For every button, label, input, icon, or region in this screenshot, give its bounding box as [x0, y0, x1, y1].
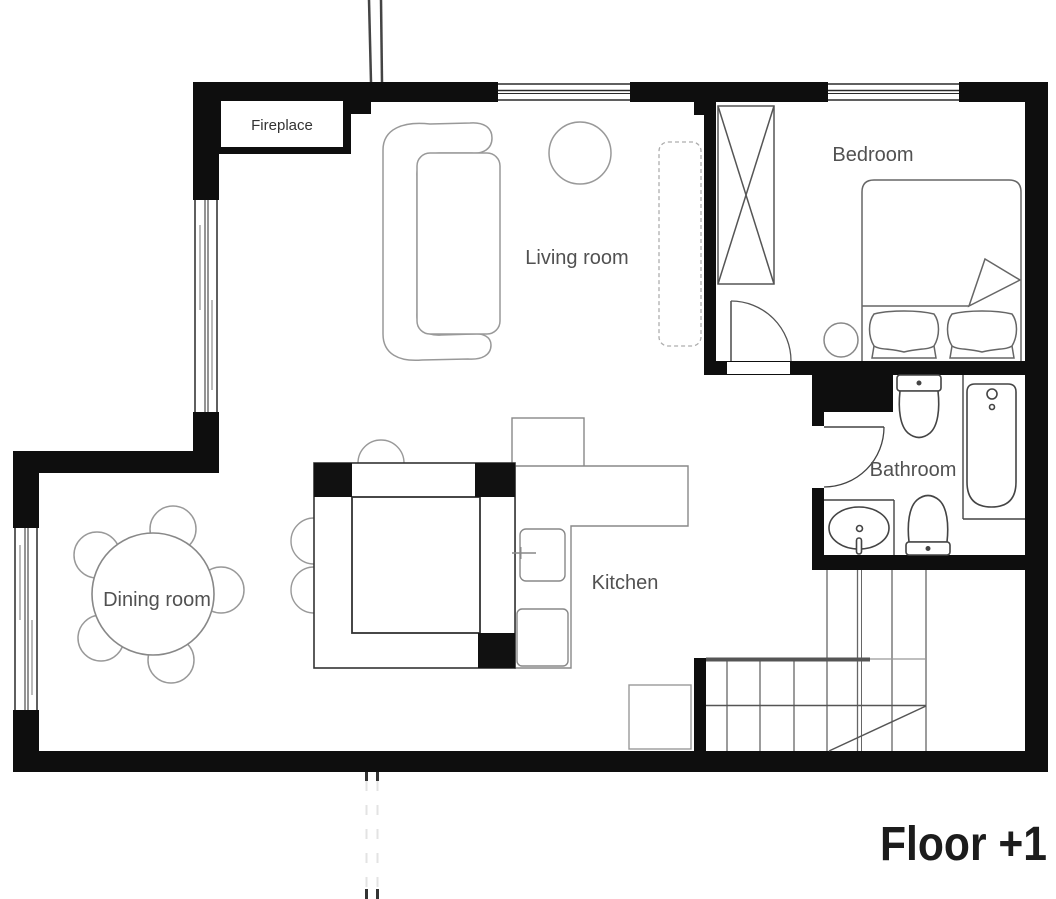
svg-text:Dining room: Dining room	[103, 589, 211, 611]
svg-text:Bedroom: Bedroom	[832, 144, 913, 166]
svg-text:Fireplace: Fireplace	[251, 117, 313, 134]
svg-text:Kitchen: Kitchen	[592, 572, 659, 594]
svg-text:Living room: Living room	[525, 247, 628, 269]
svg-text:Bathroom: Bathroom	[870, 459, 957, 481]
svg-text:Floor +1: Floor +1	[880, 818, 1047, 871]
